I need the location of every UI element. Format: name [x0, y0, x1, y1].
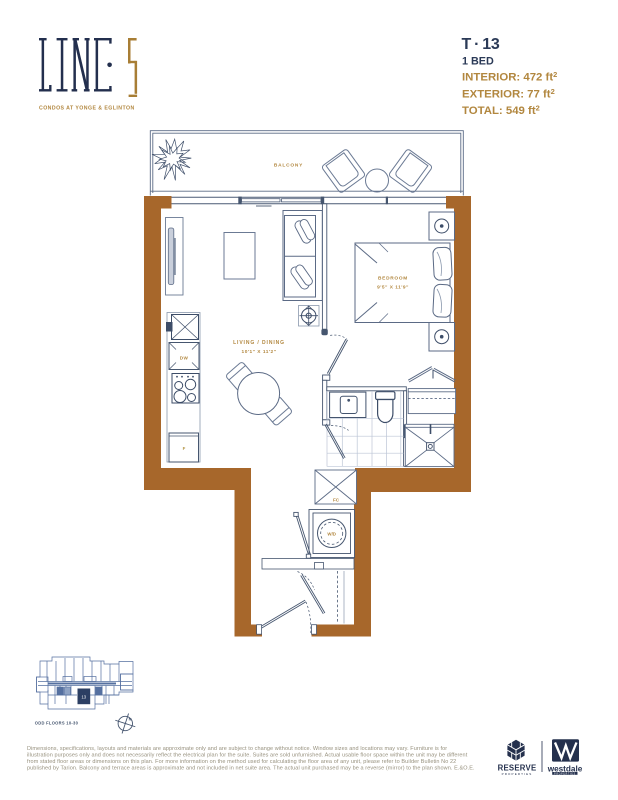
svg-text:13: 13: [81, 695, 86, 700]
svg-text:W/D: W/D: [327, 531, 336, 536]
svg-text:PROPERTIES: PROPERTIES: [554, 773, 576, 775]
svg-text:published by Tarion. Balcony a: published by Tarion. Balcony and terrace…: [27, 766, 475, 772]
svg-text:westdale: westdale: [547, 764, 583, 773]
svg-text:INTERIOR: 472 ft2: INTERIOR: 472 ft2: [462, 70, 557, 84]
svg-text:CONDOS AT YONGE & EGLINTON: CONDOS AT YONGE & EGLINTON: [39, 106, 135, 112]
svg-text:N: N: [129, 717, 132, 722]
svg-text:TOTAL: 549 ft2: TOTAL: 549 ft2: [462, 104, 540, 118]
svg-text:10'1" X 11'2": 10'1" X 11'2": [242, 349, 277, 355]
svg-text:BALCONY: BALCONY: [274, 163, 303, 169]
svg-text:DW: DW: [180, 356, 189, 361]
svg-text:PROPERTIES: PROPERTIES: [502, 772, 533, 776]
svg-text:BEDROOM: BEDROOM: [378, 276, 408, 282]
svg-text:Dimensions, specifications, la: Dimensions, specifications, layouts and …: [27, 746, 447, 752]
svg-text:from stated floor areas or dim: from stated floor areas or dimensions on…: [27, 759, 456, 765]
svg-text:ODD FLOORS 10-30: ODD FLOORS 10-30: [35, 720, 79, 725]
svg-text:LIVING / DINING: LIVING / DINING: [233, 340, 285, 346]
svg-text:RESERVE: RESERVE: [498, 764, 537, 773]
svg-text:1 BED: 1 BED: [462, 56, 494, 68]
svg-text:EXTERIOR: 77 ft2: EXTERIOR: 77 ft2: [462, 87, 555, 101]
svg-text:T · 13: T · 13: [462, 36, 500, 53]
svg-text:illustration purposes only and: illustration purposes only and does not …: [27, 753, 468, 759]
svg-text:9'5" X 11'9": 9'5" X 11'9": [377, 285, 409, 291]
svg-text:F: F: [183, 446, 186, 451]
svg-text:FC: FC: [333, 498, 340, 503]
